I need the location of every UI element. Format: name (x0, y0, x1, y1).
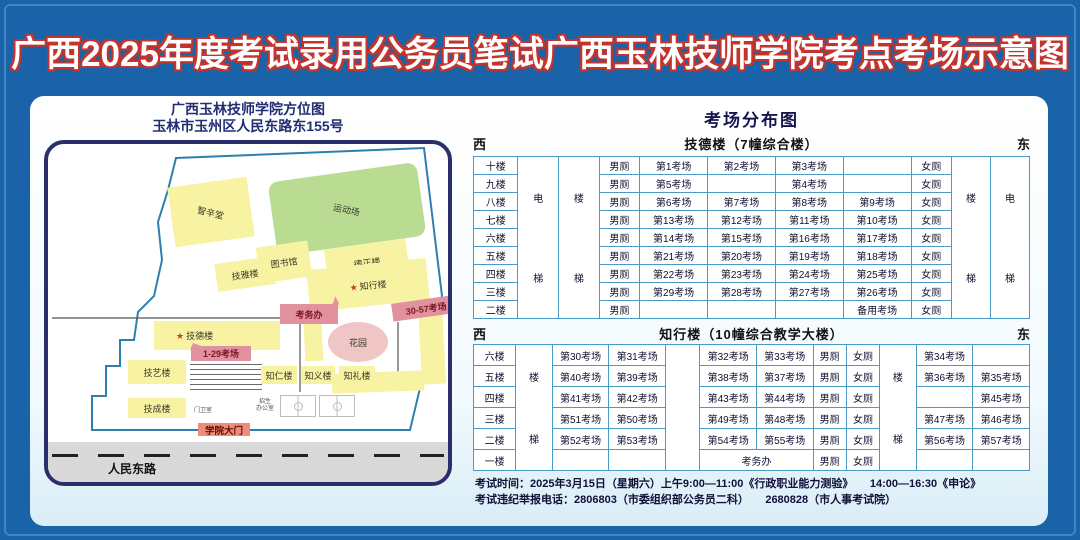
room-cell: 第1考场 (640, 157, 708, 175)
map-exam-range-label: 考务办 (280, 304, 338, 324)
male-toilet-cell: 男厕 (813, 450, 846, 471)
room-cell (640, 301, 708, 319)
male-toilet-cell: 男厕 (599, 211, 640, 229)
room-cell: 第45考场 (973, 387, 1030, 408)
stairs-west-char: 楼 (529, 369, 539, 384)
room-cell (916, 387, 973, 408)
map-item-label: 考务办 (295, 308, 322, 321)
male-toilet-cell: 男厕 (813, 429, 846, 450)
map-item-label: 图书馆 (270, 254, 299, 271)
floor-cell: 八楼 (474, 193, 518, 211)
female-toilet-cell: 女厕 (911, 265, 952, 283)
map-title-line1: 广西玉林技师学院方位图 (44, 101, 452, 118)
room-cell: 第44考场 (756, 387, 813, 408)
room-cell: 第14考场 (640, 229, 708, 247)
corridor-cell (665, 345, 699, 471)
east-marker: 东 (1017, 324, 1030, 343)
room-cell: 第8考场 (775, 193, 843, 211)
room-cell: 第34考场 (916, 345, 973, 366)
map-item-label: 30-57考场 (405, 299, 447, 318)
room-cell: 第5考场 (640, 175, 708, 193)
stairs-east-char: 梯 (966, 270, 976, 285)
west-marker: 西 (473, 134, 486, 153)
room-cell: 第47考场 (916, 408, 973, 429)
room-cell: 第24考场 (775, 265, 843, 283)
room-cell: 第43考场 (700, 387, 757, 408)
stairs-west-char: 楼 (574, 190, 584, 205)
room-cell: 第21考场 (640, 247, 708, 265)
room-cell (973, 345, 1030, 366)
female-toilet-cell: 女厕 (911, 211, 952, 229)
room-cell: 第18考场 (843, 247, 911, 265)
map-building: 图书馆 (256, 241, 313, 284)
female-toilet-cell: 女厕 (911, 229, 952, 247)
elevator-east-char: 梯 (1005, 270, 1015, 285)
female-toilet-cell: 女厕 (846, 366, 879, 387)
stairs-east-label: 楼梯 (952, 157, 990, 318)
map-title: 广西玉林技师学院方位图 玉林市玉州区人民东路东155号 (44, 101, 452, 135)
floor-cell: 六楼 (474, 229, 518, 247)
map-item-label: 运动场 (332, 200, 361, 218)
floor-row: 一楼考务办男厕女厕 (474, 450, 1030, 471)
room-cell: 第37考场 (756, 366, 813, 387)
table-jidelou: 十楼电梯楼梯男厕第1考场第2考场第3考场女厕楼梯电梯九楼男厕第5考场第4考场女厕… (473, 156, 1030, 319)
floor-row: 六楼楼梯第30考场第31考场第32考场第33考场男厕女厕楼梯第34考场 (474, 345, 1030, 366)
female-toilet-cell: 女厕 (911, 175, 952, 193)
room-cell: 第16考场 (775, 229, 843, 247)
stairs-east-char: 梯 (893, 431, 903, 446)
male-toilet-cell: 男厕 (599, 229, 640, 247)
room-cell: 第54考场 (700, 429, 757, 450)
male-toilet-cell: 男厕 (813, 408, 846, 429)
room-cell: 第2考场 (708, 157, 776, 175)
stairs-east: 楼梯 (880, 345, 917, 471)
poster-frame: 广西2025年度考试录用公务员笔试广西玉林技师学院考点考场示意图 广西玉林技师学… (0, 0, 1080, 540)
map-building: 知礼楼 (339, 366, 375, 384)
floor-cell: 二楼 (474, 301, 518, 319)
room-cell (552, 450, 609, 471)
room-cell: 第56考场 (916, 429, 973, 450)
room-cell: 第15考场 (708, 229, 776, 247)
female-toilet-cell: 女厕 (846, 429, 879, 450)
room-cell: 第9考场 (843, 193, 911, 211)
room-cell: 第25考场 (843, 265, 911, 283)
map-steps (190, 364, 262, 394)
room-cell: 第55考场 (756, 429, 813, 450)
campus-map-card: 人民东路 智辛堂运动场技雅楼图书馆德正楼★知行楼花园考务办30-57考场★技德楼… (44, 140, 452, 486)
elevator-east-char: 电 (1005, 190, 1015, 205)
male-toilet-cell: 男厕 (813, 366, 846, 387)
map-item-label: 智辛堂 (196, 202, 225, 221)
stairs-east: 楼梯 (952, 157, 991, 319)
stairs-west-char: 梯 (529, 431, 539, 446)
stairs-west-label: 楼梯 (516, 345, 552, 470)
map-item-label: 花园 (349, 336, 367, 349)
floor-cell: 四楼 (474, 265, 518, 283)
room-cell (609, 450, 666, 471)
male-toilet-cell: 男厕 (599, 265, 640, 283)
street-lane-dashes (52, 454, 444, 457)
male-toilet-cell: 男厕 (599, 175, 640, 193)
room-cell: 第6考场 (640, 193, 708, 211)
room-cell: 第53考场 (609, 429, 666, 450)
floor-cell: 七楼 (474, 211, 518, 229)
elevator-east-label: 电梯 (991, 157, 1029, 318)
floor-row: 十楼电梯楼梯男厕第1考场第2考场第3考场女厕楼梯电梯 (474, 157, 1030, 175)
floor-cell: 三楼 (474, 283, 518, 301)
room-cell: 第40考场 (552, 366, 609, 387)
room-cell: 第3考场 (775, 157, 843, 175)
room-cell: 第39考场 (609, 366, 666, 387)
room-cell (708, 175, 776, 193)
map-gate-label: 学院大门 (198, 423, 250, 436)
room-cell: 第10考场 (843, 211, 911, 229)
map-small-label: 门卫室 (188, 406, 218, 416)
report-phone-line: 考试违纪举报电话：2806803（市委组织部公务员二科） 2680828（市人事… (475, 492, 1032, 508)
floor-cell: 九楼 (474, 175, 518, 193)
room-cell: 第28考场 (708, 283, 776, 301)
floor-row: 三楼第51考场第50考场第49考场第48考场男厕女厕第47考场第46考场 (474, 408, 1030, 429)
room-cell: 第17考场 (843, 229, 911, 247)
map-basketball-court (319, 395, 355, 417)
map-item-label: ★知行楼 (349, 277, 387, 294)
map-building: 技成楼 (128, 398, 186, 418)
map-small-label: 招生 办公室 (248, 398, 282, 414)
elevator-east: 电梯 (991, 157, 1030, 319)
floor-row: 二楼第52考场第53考场第54考场第55考场男厕女厕第56考场第57考场 (474, 429, 1030, 450)
campus-map: 人民东路 智辛堂运动场技雅楼图书馆德正楼★知行楼花园考务办30-57考场★技德楼… (48, 144, 448, 482)
room-cell: 第23考场 (708, 265, 776, 283)
table2-header: 西 知行楼（10幢综合教学大楼） 东 (473, 324, 1030, 343)
map-item-label: 技艺楼 (143, 366, 170, 379)
male-toilet-cell: 男厕 (599, 193, 640, 211)
female-toilet-cell: 女厕 (911, 301, 952, 319)
map-item-label: 技成楼 (143, 402, 170, 415)
stairs-west-label: 楼梯 (559, 157, 599, 318)
street-name: 人民东路 (108, 460, 156, 477)
room-cell: 第51考场 (552, 408, 609, 429)
male-toilet-cell: 男厕 (599, 157, 640, 175)
footer-notes: 考试时间：2025年3月15日（星期六）上午9:00—11:00《行政职业能力测… (475, 476, 1032, 508)
room-cell: 第32考场 (700, 345, 757, 366)
room-cell: 第36考场 (916, 366, 973, 387)
table1-building-name: 技德楼（7幢综合楼） (684, 134, 818, 153)
floor-cell: 五楼 (474, 366, 516, 387)
map-basketball-court (280, 395, 316, 417)
floor-row: 四楼第41考场第42考场第43考场第44考场男厕女厕第45考场 (474, 387, 1030, 408)
stairs-east-char: 楼 (966, 190, 976, 205)
poster-title: 广西2025年度考试录用公务员笔试广西玉林技师学院考点考场示意图 (0, 26, 1080, 77)
room-cell: 第49考场 (700, 408, 757, 429)
room-cell: 第4考场 (775, 175, 843, 193)
map-item-label: 知仁楼 (265, 369, 292, 382)
female-toilet-cell: 女厕 (846, 345, 879, 366)
stairs-east-char: 楼 (893, 369, 903, 384)
map-item-label: 知礼楼 (343, 369, 370, 382)
star-icon: ★ (176, 331, 184, 341)
room-cell (973, 450, 1030, 471)
stairs-east-label: 楼梯 (880, 345, 916, 470)
map-item-label: 知义楼 (304, 369, 331, 382)
room-cell: 第26考场 (843, 283, 911, 301)
room-cell: 第29考场 (640, 283, 708, 301)
room-cell: 第41考场 (552, 387, 609, 408)
room-cell: 第19考场 (775, 247, 843, 265)
room-cell: 第11考场 (775, 211, 843, 229)
female-toilet-cell: 女厕 (846, 450, 879, 471)
table-zhixinglou: 六楼楼梯第30考场第31考场第32考场第33考场男厕女厕楼梯第34考场五楼第40… (473, 344, 1030, 471)
elevator-west-label: 电梯 (518, 157, 558, 318)
room-cell: 第35考场 (973, 366, 1030, 387)
west-marker: 西 (473, 324, 486, 343)
room-cell (708, 301, 776, 319)
room-cell (775, 301, 843, 319)
male-toilet-cell: 男厕 (599, 283, 640, 301)
map-item-label: 1-29考场 (203, 347, 239, 360)
exam-office-cell: 考务办 (700, 450, 813, 471)
table1-header: 西 技德楼（7幢综合楼） 东 (473, 134, 1030, 153)
male-toilet-cell: 男厕 (599, 247, 640, 265)
map-garden: 花园 (328, 322, 388, 362)
stairs-west: 楼梯 (559, 157, 600, 319)
room-cell: 第33考场 (756, 345, 813, 366)
street-band: 人民东路 (48, 442, 448, 482)
room-cell (916, 450, 973, 471)
room-cell: 第46考场 (973, 408, 1030, 429)
room-cell: 第42考场 (609, 387, 666, 408)
elevator-west-char: 电 (533, 190, 543, 205)
room-cell (843, 157, 911, 175)
map-building: 知仁楼 (261, 366, 297, 384)
female-toilet-cell: 女厕 (846, 408, 879, 429)
room-cell: 第22考场 (640, 265, 708, 283)
room-cell: 第38考场 (700, 366, 757, 387)
room-cell: 第20考场 (708, 247, 776, 265)
stairs-west-char: 梯 (574, 270, 584, 285)
room-cell: 第12考场 (708, 211, 776, 229)
female-toilet-cell: 女厕 (911, 247, 952, 265)
distribution-title: 考场分布图 (473, 106, 1030, 131)
content-panel: 广西玉林技师学院方位图 玉林市玉州区人民东路东155号 人民东路 智辛堂运动场技… (30, 96, 1048, 526)
room-cell: 第52考场 (552, 429, 609, 450)
room-cell: 第57考场 (973, 429, 1030, 450)
floor-row: 五楼第40考场第39考场第38考场第37考场男厕女厕第36考场第35考场 (474, 366, 1030, 387)
elevator-west-char: 梯 (533, 270, 543, 285)
female-toilet-cell: 女厕 (846, 387, 879, 408)
elevator-west: 电梯 (518, 157, 559, 319)
floor-cell: 十楼 (474, 157, 518, 175)
room-cell: 第50考场 (609, 408, 666, 429)
map-item-label: 学院大门 (205, 423, 243, 437)
male-toilet-cell: 男厕 (813, 387, 846, 408)
room-cell: 备用考场 (843, 301, 911, 319)
floor-cell: 六楼 (474, 345, 516, 366)
table2-building-name: 知行楼（10幢综合教学大楼） (659, 324, 843, 343)
floor-cell: 二楼 (474, 429, 516, 450)
map-building: 知义楼 (301, 366, 335, 384)
female-toilet-cell: 女厕 (911, 157, 952, 175)
map-building: 智辛堂 (167, 177, 255, 248)
floor-cell: 三楼 (474, 408, 516, 429)
room-cell: 第30考场 (552, 345, 609, 366)
male-toilet-cell: 男厕 (813, 345, 846, 366)
room-cell: 第48考场 (756, 408, 813, 429)
female-toilet-cell: 女厕 (911, 283, 952, 301)
map-building: 技艺楼 (128, 360, 186, 384)
stairs-west: 楼梯 (516, 345, 553, 471)
floor-cell: 一楼 (474, 450, 516, 471)
male-toilet-cell: 男厕 (599, 301, 640, 319)
map-item-label: 技雅楼 (231, 266, 260, 283)
room-cell (843, 175, 911, 193)
floor-cell: 四楼 (474, 387, 516, 408)
room-cell: 第31考场 (609, 345, 666, 366)
map-title-line2: 玉林市玉州区人民东路东155号 (44, 118, 452, 135)
room-cell: 第27考场 (775, 283, 843, 301)
floor-cell: 五楼 (474, 247, 518, 265)
distribution-section: 考场分布图 西 技德楼（7幢综合楼） 东 十楼电梯楼梯男厕第1考场第2考场第3考… (473, 96, 1030, 526)
room-cell: 第7考场 (708, 193, 776, 211)
map-exam-range-label: 1-29考场 (191, 346, 251, 361)
room-cell: 第13考场 (640, 211, 708, 229)
exam-time-line: 考试时间：2025年3月15日（星期六）上午9:00—11:00《行政职业能力测… (475, 476, 1032, 492)
east-marker: 东 (1017, 134, 1030, 153)
star-icon: ★ (349, 282, 358, 293)
female-toilet-cell: 女厕 (911, 193, 952, 211)
